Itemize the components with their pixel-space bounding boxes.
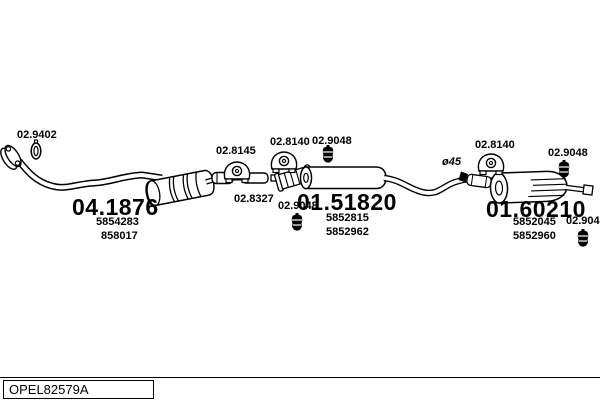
oem-number: 858017 bbox=[101, 231, 138, 242]
rubber-mount-icon bbox=[559, 160, 570, 178]
callout-clamp-front: 02.9402 bbox=[17, 130, 57, 141]
oem-number: 5852962 bbox=[326, 227, 369, 238]
callout-hanger-rear: 02.8140 bbox=[475, 140, 515, 151]
rubber-mount-icon bbox=[292, 213, 303, 231]
clamp-ring-icon bbox=[31, 140, 41, 159]
oem-number: 5852815 bbox=[326, 213, 369, 224]
oem-number: 5854283 bbox=[96, 217, 139, 228]
callout-pipe-diameter: ø45 bbox=[442, 157, 461, 168]
callout-sleeve: 02.8327 bbox=[234, 194, 274, 205]
oem-number: 5852045 bbox=[513, 217, 556, 228]
callout-mount-bot-rear: 02.9048 bbox=[566, 216, 600, 227]
tailpipe bbox=[566, 185, 593, 195]
rear-inlet-sleeve bbox=[466, 174, 491, 188]
footer-divider bbox=[0, 377, 600, 378]
hanger-icon bbox=[271, 152, 296, 173]
rubber-mount-icon bbox=[323, 145, 334, 163]
part-number-center-muffler: 01.51820 bbox=[297, 191, 397, 214]
rubber-mount-icon bbox=[578, 229, 589, 247]
exhaust-parts-diagram: 02.9402 04.1876 5854283 858017 02.8145 0… bbox=[0, 0, 600, 400]
diagram-code-box: OPEL82579A bbox=[3, 380, 154, 399]
front-pipe bbox=[19, 161, 162, 187]
hanger-icon bbox=[478, 154, 503, 175]
callout-hanger-front: 02.8145 bbox=[216, 146, 256, 157]
callout-hanger-mid: 02.8140 bbox=[270, 137, 310, 148]
hanger-icon bbox=[224, 162, 249, 183]
callout-mount-top-mid: 02.9048 bbox=[312, 136, 352, 147]
callout-mount-top-rear: 02.9048 bbox=[548, 148, 588, 159]
oem-number: 5852960 bbox=[513, 231, 556, 242]
center-muffler bbox=[301, 167, 387, 189]
diagram-code: OPEL82579A bbox=[9, 383, 89, 396]
